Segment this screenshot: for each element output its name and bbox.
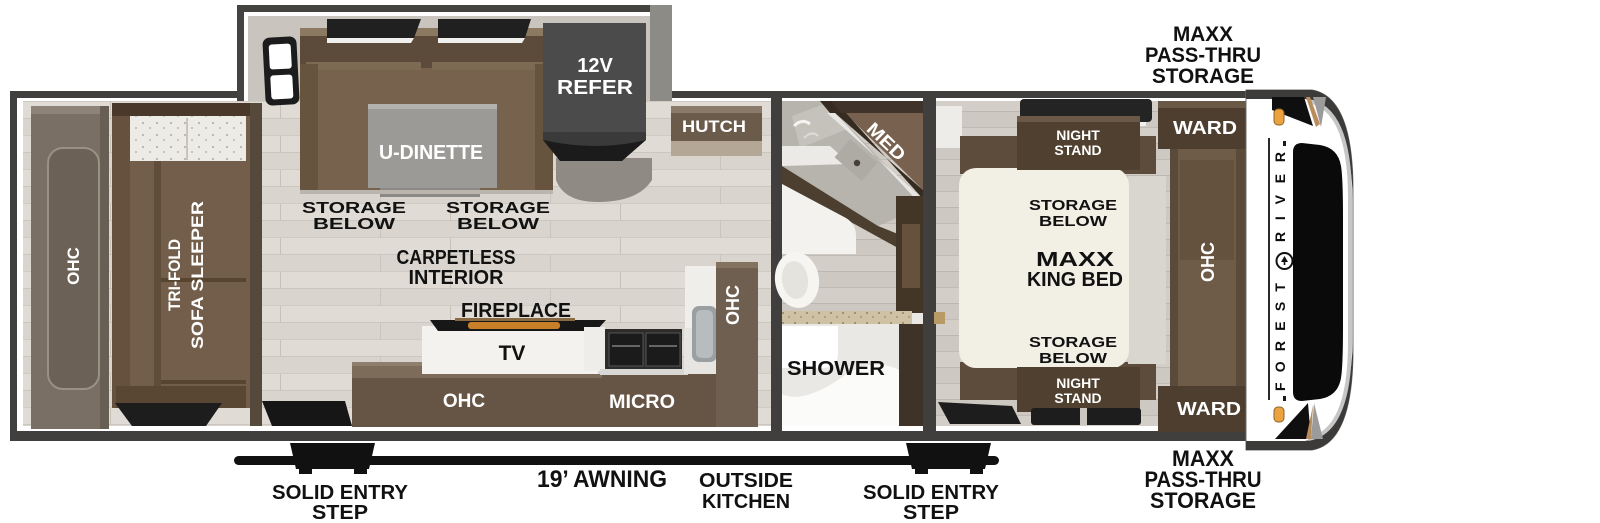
svg-text:STORAGE: STORAGE (302, 200, 406, 217)
svg-text:WARD: WARD (1173, 118, 1237, 138)
svg-text:MAXX: MAXX (1173, 23, 1233, 46)
svg-text:STORAGE: STORAGE (1029, 334, 1117, 351)
svg-text:TRI-FOLD: TRI-FOLD (165, 239, 184, 311)
svg-text:REFER: REFER (557, 77, 634, 99)
svg-text:19’ AWNING: 19’ AWNING (537, 466, 667, 493)
svg-text:STEP: STEP (312, 502, 368, 523)
svg-text:STEP: STEP (903, 502, 959, 523)
svg-text:SOFA SLEEPER: SOFA SLEEPER (188, 201, 207, 349)
svg-text:BELOW: BELOW (457, 216, 540, 233)
svg-text:12V: 12V (577, 55, 613, 77)
svg-text:U-DINETTE: U-DINETTE (379, 142, 483, 164)
svg-text:WARD: WARD (1177, 399, 1241, 419)
svg-text:PASS-THRU: PASS-THRU (1145, 44, 1261, 67)
svg-text:OHC: OHC (64, 247, 83, 285)
svg-text:SOLID ENTRY: SOLID ENTRY (272, 482, 409, 504)
svg-text:INTERIOR: INTERIOR (409, 267, 505, 289)
svg-text:MAXX: MAXX (1036, 249, 1115, 271)
svg-text:SOLID ENTRY: SOLID ENTRY (863, 482, 1000, 504)
svg-text:STORAGE: STORAGE (1029, 197, 1117, 214)
svg-text:SHOWER: SHOWER (787, 358, 886, 380)
svg-text:KING BED: KING BED (1027, 269, 1123, 291)
svg-text:TV: TV (499, 342, 526, 365)
svg-text:HUTCH: HUTCH (682, 117, 746, 136)
svg-text:OHC: OHC (723, 285, 743, 325)
svg-text:OUTSIDE: OUTSIDE (699, 470, 793, 492)
svg-text:NIGHT: NIGHT (1056, 127, 1100, 143)
svg-text:FIREPLACE: FIREPLACE (461, 300, 571, 322)
svg-text:STAND: STAND (1054, 390, 1101, 406)
svg-text:STORAGE: STORAGE (1150, 488, 1256, 513)
svg-text:OHC: OHC (1198, 242, 1218, 282)
svg-text:CARPETLESS: CARPETLESS (397, 247, 516, 269)
svg-text:NIGHT: NIGHT (1056, 375, 1100, 391)
svg-text:BELOW: BELOW (1039, 213, 1108, 230)
svg-text:STAND: STAND (1054, 142, 1101, 158)
svg-text:KITCHEN: KITCHEN (702, 491, 790, 513)
svg-text:BELOW: BELOW (1039, 350, 1108, 367)
svg-text:MICRO: MICRO (609, 392, 675, 413)
svg-text:OHC: OHC (443, 391, 486, 412)
svg-text:BELOW: BELOW (313, 216, 396, 233)
svg-text:STORAGE: STORAGE (446, 200, 550, 217)
svg-text:STORAGE: STORAGE (1152, 65, 1254, 88)
